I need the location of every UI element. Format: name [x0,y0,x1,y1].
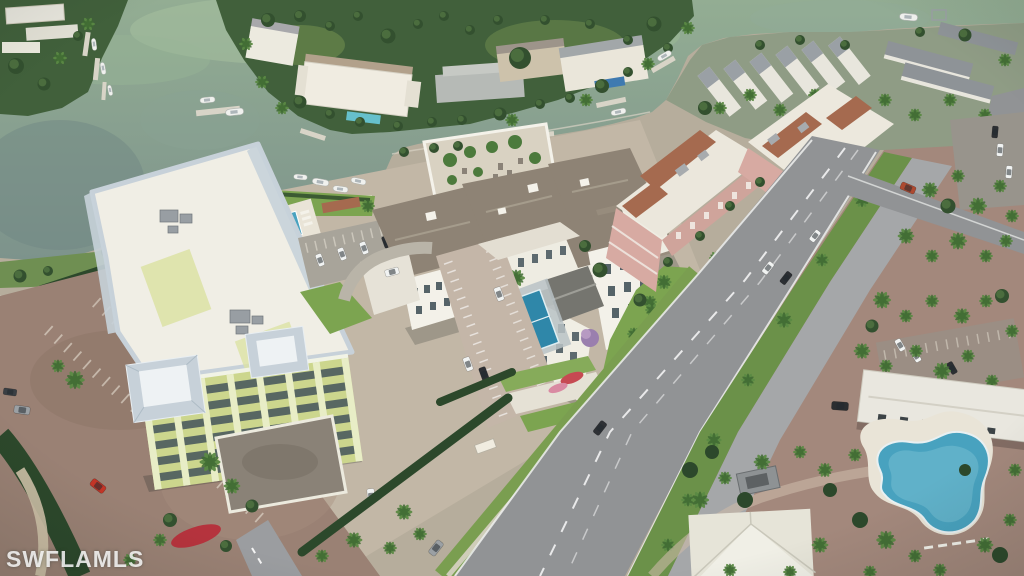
scene-svg: . [0,0,1024,576]
mls-watermark: SWFLAMLS [6,546,144,573]
aerial-photo: . [0,0,1024,576]
vignette-overlay [0,0,1024,576]
